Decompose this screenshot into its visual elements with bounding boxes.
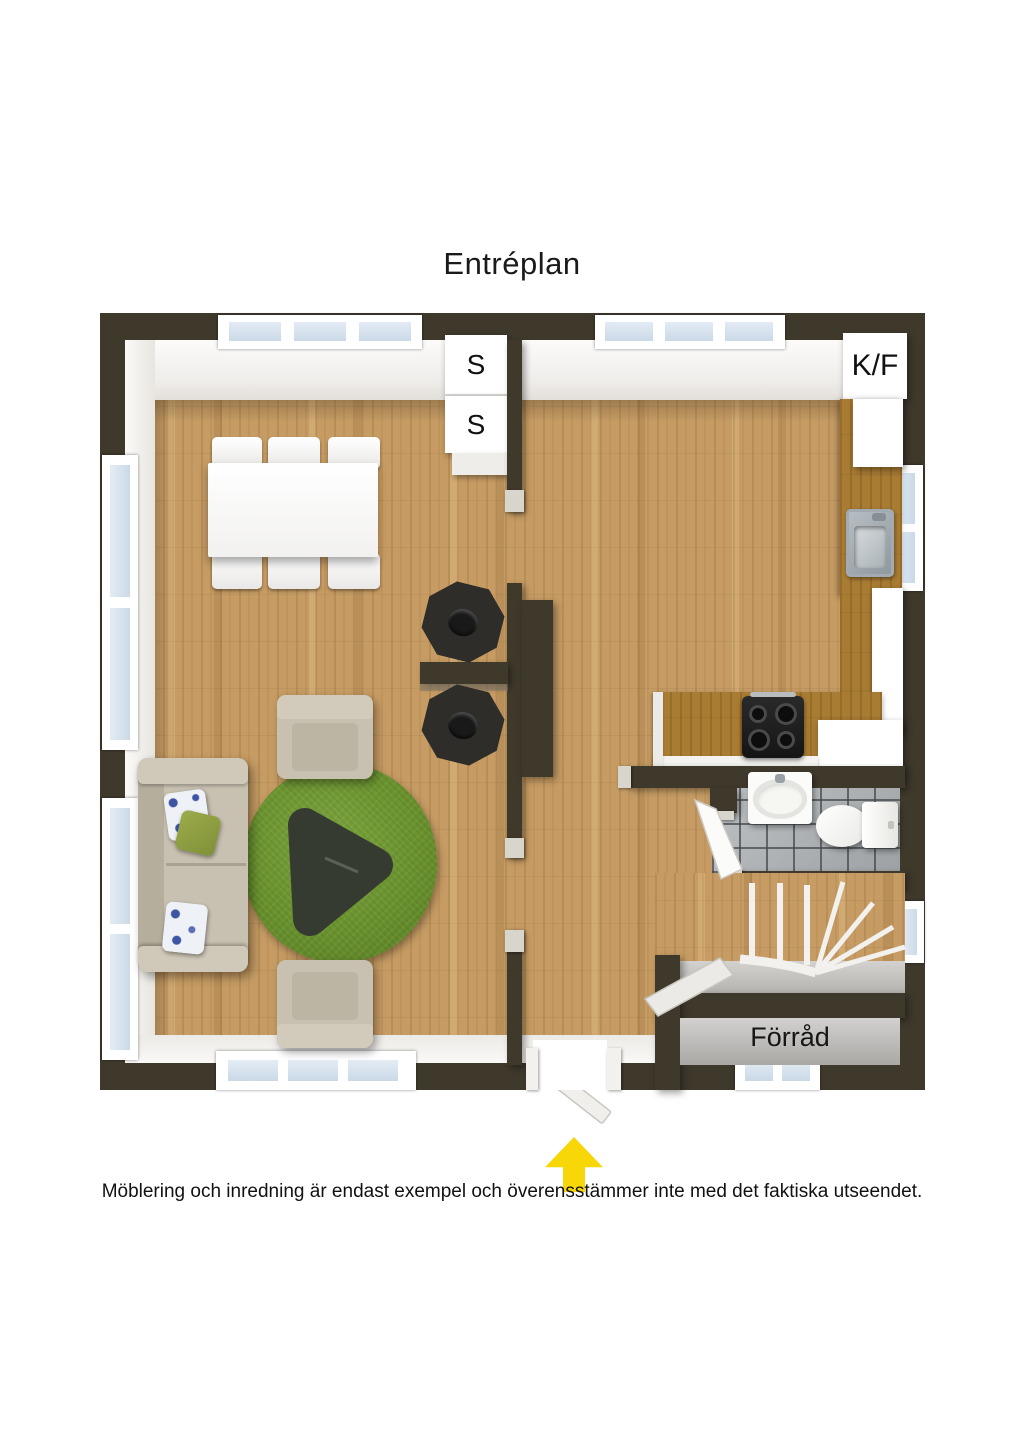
entrance-door-jamb: [607, 1048, 621, 1090]
page-title: Entréplan: [0, 246, 1024, 282]
floor-plan: S S: [100, 313, 925, 1090]
storage-door-open: [645, 958, 733, 1016]
bathroom-door-open: [695, 800, 742, 879]
entrance-door-jamb: [526, 1048, 538, 1090]
disclaimer-text: Möblering och inredning är endast exempe…: [0, 1181, 1024, 1203]
entrance-threshold: [533, 1040, 607, 1090]
coffee-table: [305, 825, 376, 919]
floor-plan-page: Entréplan: [0, 0, 1024, 1448]
plan-vector-overlay: [100, 313, 925, 1153]
